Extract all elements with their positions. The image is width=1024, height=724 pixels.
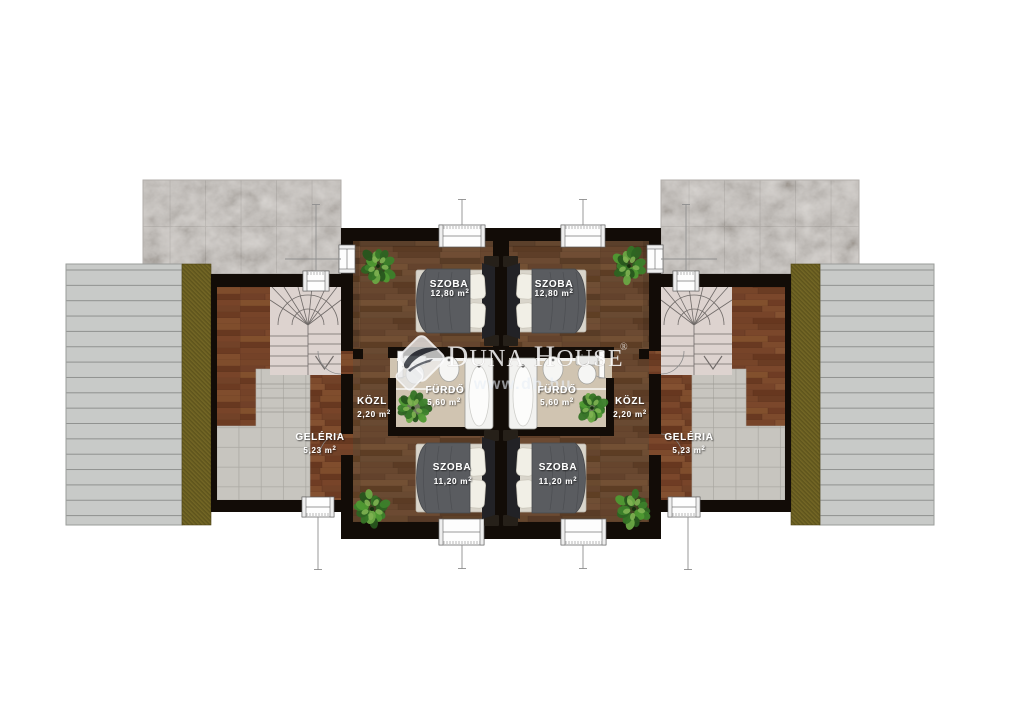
svg-text:GELÉRIA: GELÉRIA [664,430,713,443]
svg-text:GELÉRIA: GELÉRIA [295,430,344,443]
svg-text:KÖZL: KÖZL [615,394,645,407]
svg-text:5,60 m2: 5,60 m2 [427,398,461,407]
svg-text:2,20 m2: 2,20 m2 [613,410,647,419]
svg-text:12,80 m2: 12,80 m2 [431,289,470,298]
svg-text:5,23 m2: 5,23 m2 [303,446,336,455]
svg-text:FÜRDŐ: FÜRDŐ [425,383,464,396]
svg-text:11,20 m2: 11,20 m2 [539,477,578,486]
svg-text:SZOBA: SZOBA [539,462,578,473]
svg-text:11,20 m2: 11,20 m2 [434,477,473,486]
svg-text:KÖZL: KÖZL [357,394,387,407]
svg-text:12,80 m2: 12,80 m2 [535,289,574,298]
svg-text:5,60 m2: 5,60 m2 [540,398,574,407]
svg-text:®: ® [620,342,628,353]
svg-text:5,23 m2: 5,23 m2 [672,446,705,455]
svg-text:2,20 m2: 2,20 m2 [357,410,391,419]
svg-text:SZOBA: SZOBA [433,462,472,473]
svg-text:FÜRDŐ: FÜRDŐ [537,383,576,396]
svg-text:DUNA HOUSE: DUNA HOUSE [447,341,624,373]
